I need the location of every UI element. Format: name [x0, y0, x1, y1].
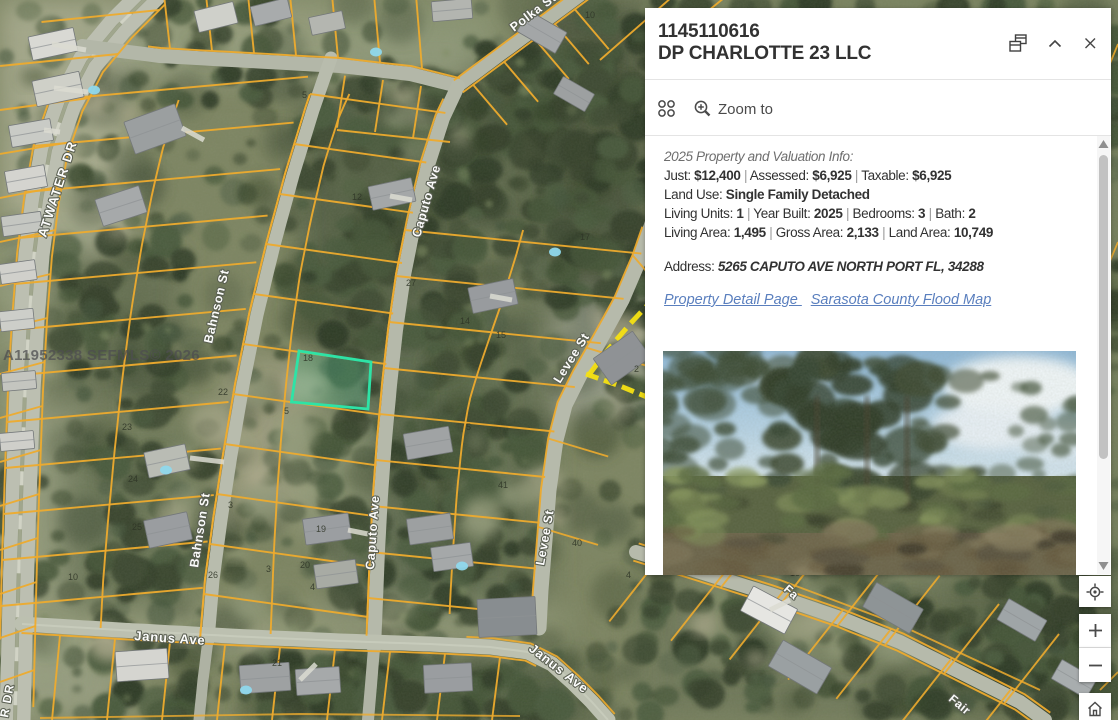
svg-text:4: 4 [626, 570, 631, 580]
svg-text:15: 15 [496, 330, 506, 340]
svg-text:5: 5 [466, 422, 471, 432]
svg-text:25: 25 [132, 522, 142, 532]
svg-text:24: 24 [128, 474, 138, 484]
svg-text:17: 17 [580, 232, 590, 242]
svg-text:5: 5 [284, 406, 289, 416]
svg-text:18: 18 [303, 353, 313, 363]
svg-text:A11952338 SEFMLS© 2026: A11952338 SEFMLS© 2026 [3, 347, 200, 364]
svg-text:41: 41 [498, 480, 508, 490]
svg-text:14: 14 [460, 316, 470, 326]
svg-text:40: 40 [572, 538, 582, 548]
svg-text:2: 2 [634, 364, 639, 374]
svg-text:3: 3 [266, 564, 271, 574]
svg-text:10: 10 [68, 572, 78, 582]
svg-text:12: 12 [352, 192, 362, 202]
svg-text:10: 10 [585, 10, 595, 20]
svg-text:20: 20 [300, 560, 310, 570]
svg-text:21: 21 [272, 658, 282, 668]
svg-text:4: 4 [310, 582, 315, 592]
svg-text:5: 5 [302, 90, 307, 100]
svg-text:22: 22 [218, 387, 228, 397]
svg-text:23: 23 [122, 422, 132, 432]
svg-text:27: 27 [406, 278, 416, 288]
svg-text:3: 3 [228, 500, 233, 510]
svg-text:26: 26 [208, 570, 218, 580]
svg-text:19: 19 [316, 524, 326, 534]
